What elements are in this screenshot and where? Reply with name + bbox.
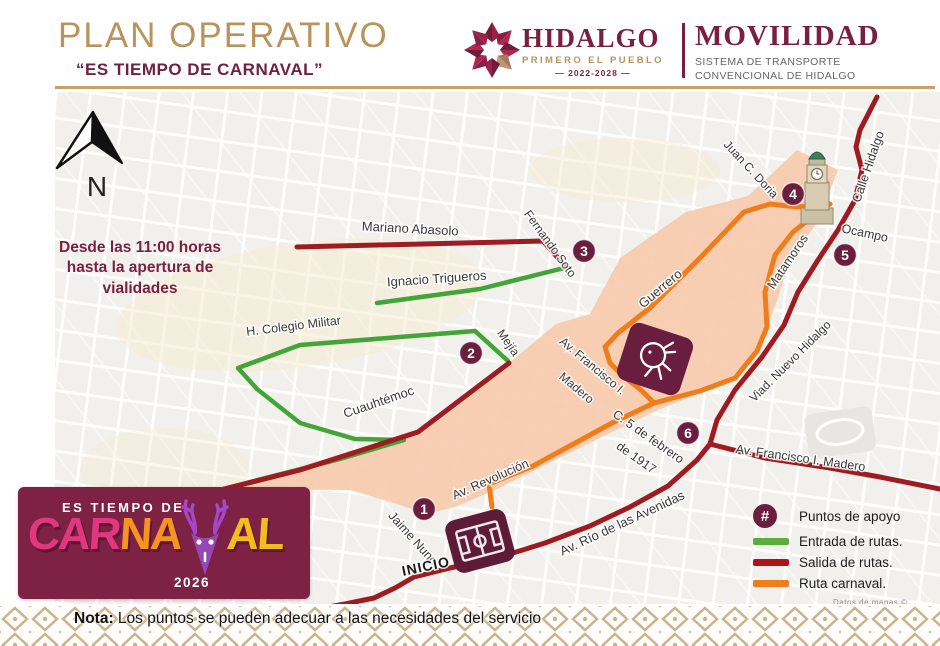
carnival-logo: ES TIEMPO DE CAR NA AL 2026: [18, 487, 310, 599]
header-rule: [55, 86, 935, 89]
support-point-marker-1: 1: [413, 498, 436, 521]
agency-name: MOVILIDAD: [695, 22, 880, 51]
support-point-marker-6: 6: [677, 422, 700, 445]
legend-support-points: # Puntos de apoyo: [753, 504, 903, 528]
legend-entry-label: Entrada de rutas.: [799, 534, 903, 549]
page-title: PLAN OPERATIVO: [58, 16, 389, 56]
footnote: Nota: Los puntos se pueden adecuar a las…: [74, 610, 541, 628]
deer-mask-icon: [179, 495, 231, 583]
entry-route-swatch: [753, 538, 789, 545]
brand-divider: [682, 23, 685, 78]
north-arrow-icon: N: [57, 112, 122, 202]
svg-text:2: 2: [467, 345, 475, 361]
legend-carnival: Ruta carnaval.: [753, 576, 903, 591]
carnival-word-part1: CAR: [26, 511, 121, 556]
hidalgo-tagline: PRIMERO EL PUEBLO: [522, 55, 664, 66]
page-subtitle: “ES TIEMPO DE CARNAVAL”: [76, 60, 323, 80]
street-label: Juan C. Doria: [721, 138, 781, 201]
street-label: Av. Río de las Avenidas: [557, 487, 687, 558]
footnote-text: Los puntos se pueden adecuar a las neces…: [114, 610, 541, 627]
svg-text:4: 4: [789, 186, 797, 202]
carnival-route-swatch: [753, 580, 789, 587]
svg-text:N: N: [87, 171, 107, 202]
footnote-bold: Nota:: [74, 610, 114, 627]
svg-text:3: 3: [580, 243, 588, 259]
legend-entry: Entrada de rutas.: [753, 534, 903, 549]
hidalgo-star-icon: [464, 17, 520, 81]
support-point-marker-3: 3: [573, 240, 596, 263]
agency-subtitle-line1: SISTEMA DE TRANSPORTE: [695, 55, 880, 69]
support-point-marker-5: 5: [834, 244, 857, 267]
hidalgo-name: HIDALGO: [522, 25, 664, 52]
carnival-word-part3: AL: [225, 511, 284, 556]
agency-subtitle-line2: CONVENCIONAL DE HIDALGO: [695, 69, 880, 83]
schedule-notice: Desde las 11:00 horas hasta la apertura …: [55, 238, 225, 299]
carnival-word-part2: NA: [118, 511, 182, 556]
svg-text:6: 6: [684, 425, 692, 441]
support-point-marker-2: 2: [460, 342, 483, 365]
svg-text:1: 1: [420, 501, 428, 517]
map-attribution: Datos de mapas ©: [833, 598, 907, 604]
svg-text:5: 5: [841, 247, 849, 263]
legend-exit: Salida de rutas.: [753, 555, 903, 570]
exit-route-swatch: [753, 559, 789, 566]
support-point-marker-4: 4: [782, 183, 805, 206]
street-label: Ocampo: [840, 221, 889, 245]
legend: # Puntos de apoyo Entrada de rutas. Sali…: [753, 504, 903, 597]
street-label: Mariano Abasolo: [361, 218, 458, 238]
carnival-logo-year: 2026: [174, 575, 210, 590]
support-point-symbol: #: [753, 504, 777, 528]
carnival-logo-wordmark: CAR NA AL: [28, 511, 283, 583]
movilidad-wordmark: MOVILIDAD SISTEMA DE TRANSPORTE CONVENCI…: [695, 22, 880, 83]
poster: PLAN OPERATIVO “ES TIEMPO DE CARNAVAL” H…: [0, 0, 940, 646]
legend-exit-label: Salida de rutas.: [799, 555, 893, 570]
park-area: [803, 405, 877, 459]
street-label: Cuauhtémoc: [341, 382, 416, 420]
legend-carnival-label: Ruta carnaval.: [799, 576, 886, 591]
hidalgo-years: — 2022-2028 —: [522, 68, 664, 78]
legend-support-points-label: Puntos de apoyo: [799, 509, 900, 524]
hidalgo-wordmark: HIDALGO PRIMERO EL PUEBLO — 2022-2028 —: [522, 25, 664, 78]
